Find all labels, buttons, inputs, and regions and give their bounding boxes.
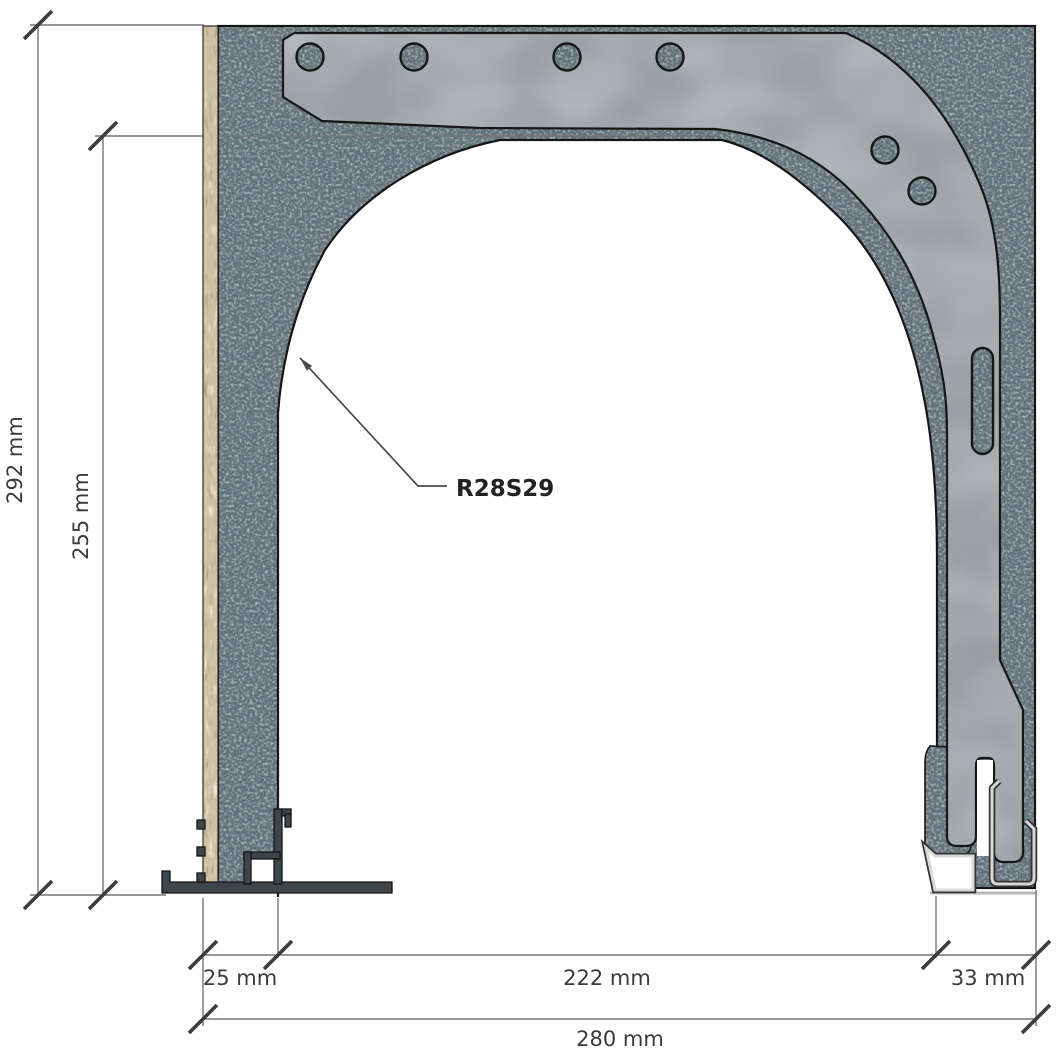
- clip-nub: [197, 847, 205, 856]
- screw-hole-icon: [297, 44, 324, 71]
- dim-right-assembly-label: 33 mm: [951, 966, 1025, 990]
- dim-left-wall-label: 25 mm: [203, 966, 277, 990]
- track-wall: [274, 809, 282, 884]
- wood-batten: [203, 26, 218, 888]
- adjustment-slot: [972, 348, 993, 454]
- screw-hole-icon: [401, 44, 428, 71]
- arch-opening: [278, 140, 937, 897]
- part-label: R28S29: [456, 476, 554, 502]
- track-step-side: [244, 852, 251, 884]
- screw-hole-icon: [657, 44, 684, 71]
- track-hook-lip: [285, 814, 291, 827]
- clip-nub: [197, 873, 205, 882]
- screw-hole-icon: [872, 137, 899, 164]
- screw-hole-icon: [909, 178, 936, 205]
- dim-inner-height-label: 255 mm: [69, 472, 93, 560]
- dim-total-width-label: 280 mm: [576, 1027, 664, 1051]
- dim-outer-height-label: 292 mm: [3, 416, 27, 504]
- dim-opening-width-label: 222 mm: [563, 966, 651, 990]
- clip-nub: [197, 820, 205, 829]
- cross-section-drawing: 292 mm 255 mm 25 mm 222 mm 33 mm 280 mm …: [0, 0, 1060, 1058]
- technical-drawing-page: 292 mm 255 mm 25 mm 222 mm 33 mm 280 mm …: [0, 0, 1060, 1058]
- track-notch: [251, 858, 275, 884]
- screw-hole-icon: [554, 44, 581, 71]
